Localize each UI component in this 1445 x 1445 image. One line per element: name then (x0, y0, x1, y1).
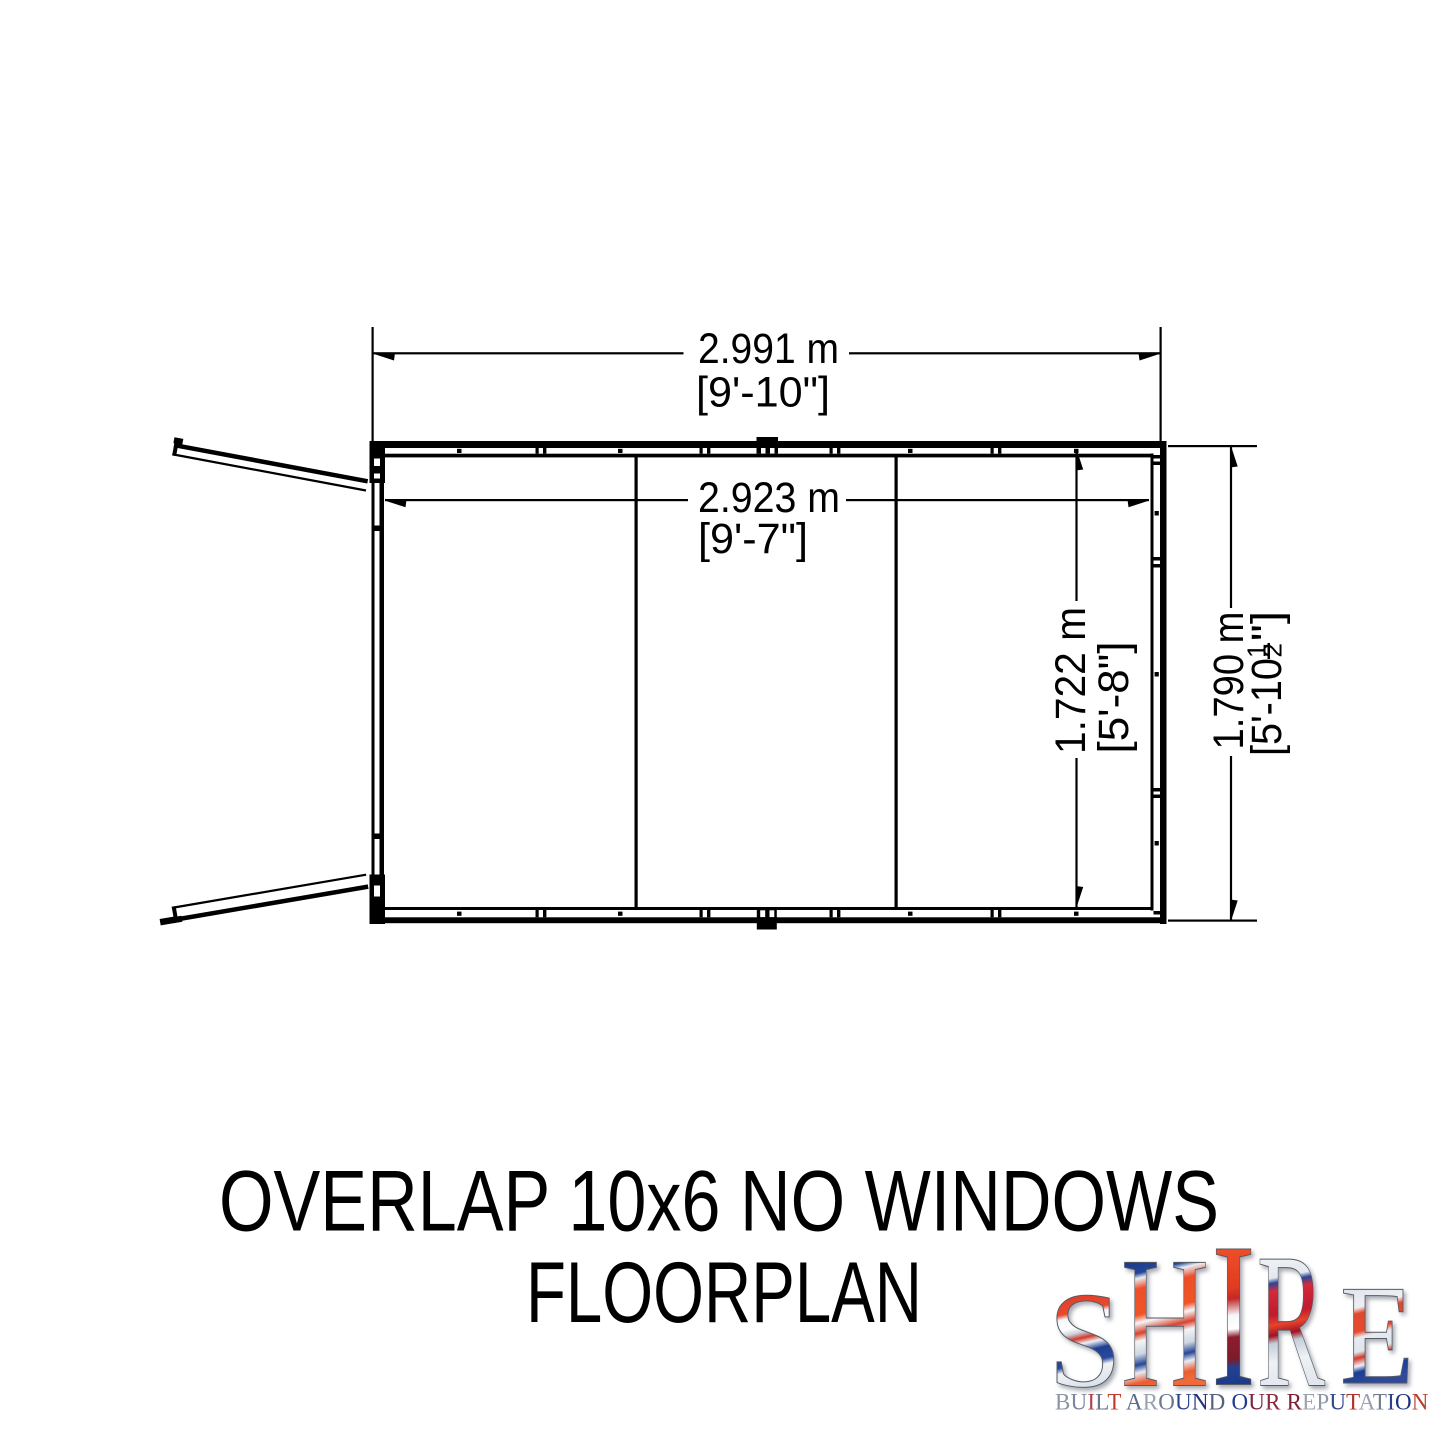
svg-text:FLOORPLAN: FLOORPLAN (526, 1245, 922, 1341)
svg-text:[9'-7"]: [9'-7"] (698, 515, 808, 563)
svg-text:OVERLAP 10x6 NO WINDOWS: OVERLAP 10x6 NO WINDOWS (219, 1154, 1219, 1250)
svg-text:[5'-10: [5'-10 (1243, 658, 1291, 756)
svg-text:[9'-10"]: [9'-10"] (696, 369, 830, 417)
svg-text:1.722 m: 1.722 m (1047, 607, 1095, 754)
svg-text:2.991 m: 2.991 m (698, 325, 839, 373)
svg-text:BUILT AROUND OUR REPUTATION: BUILT AROUND OUR REPUTATION (1055, 1390, 1429, 1415)
svg-text:[5'-8"]: [5'-8"] (1090, 642, 1138, 754)
svg-text:"]: "] (1243, 611, 1291, 641)
svg-text:2: 2 (1258, 643, 1288, 657)
